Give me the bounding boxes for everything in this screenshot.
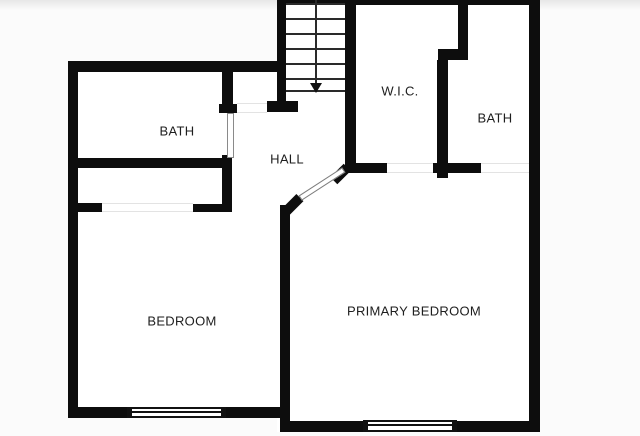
- wall-corridor-a: [345, 163, 387, 173]
- wall-bedroom-top-left: [68, 203, 102, 212]
- floor-left-section: [68, 61, 290, 418]
- window-primary-bedroom: [363, 420, 457, 432]
- window-jamb-left: [128, 408, 132, 417]
- wall-bath-left-right-upper: [222, 71, 233, 104]
- opening-wic-door: [387, 163, 433, 173]
- window-jamb-left: [364, 421, 368, 431]
- window-bedroom: [127, 407, 226, 418]
- opening-hall-closet: [237, 103, 267, 113]
- opening-bedroom-closet: [102, 203, 193, 212]
- stair-run-line: [315, 0, 317, 84]
- window-jamb-right: [221, 408, 225, 417]
- wall-cap-stair-left: [267, 101, 298, 112]
- wall-primary-bottom-left: [280, 421, 363, 432]
- wall-top-left-section: [68, 61, 283, 72]
- room-label-primary-bedroom: PRIMARY BEDROOM: [347, 304, 481, 319]
- room-label-bath-right: BATH: [478, 111, 513, 126]
- room-label-wic: W.I.C.: [381, 84, 418, 99]
- wall-stair-left: [277, 0, 286, 101]
- room-label-bedroom: BEDROOM: [147, 314, 216, 329]
- wall-bath-left-bottom: [68, 158, 232, 168]
- room-label-bath-left: BATH: [160, 124, 195, 139]
- floor-plan: BATH HALL W.I.C. BATH BEDROOM PRIMARY BE…: [0, 0, 640, 436]
- wall-primary-left: [280, 205, 290, 432]
- wall-stair-right: [345, 0, 356, 172]
- window-jamb-right: [452, 421, 456, 431]
- wall-bedroom-bottom-left: [68, 407, 127, 418]
- wall-cap-bath-door: [219, 104, 237, 113]
- opening-bath-right-door: [481, 163, 529, 173]
- window-mullion: [129, 411, 224, 413]
- room-label-hall: HALL: [270, 152, 304, 167]
- wall-divider-lower: [437, 60, 448, 178]
- wall-bedroom-top-right: [193, 204, 232, 212]
- wall-divider-jog: [438, 49, 468, 60]
- wall-left-outer: [68, 61, 78, 418]
- wall-primary-bottom-right: [457, 421, 540, 432]
- wall-right-outer: [529, 0, 540, 432]
- window-mullion: [365, 424, 455, 426]
- stair-direction-arrow-icon: [310, 83, 322, 93]
- door-leaf-bath-left: [227, 113, 234, 158]
